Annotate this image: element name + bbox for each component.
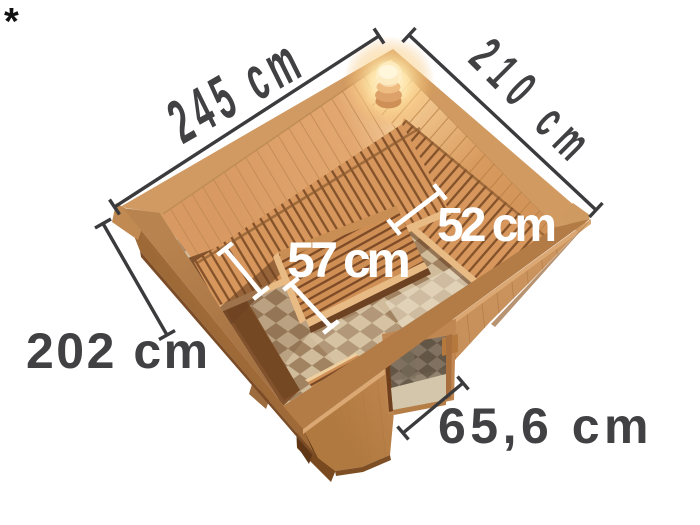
svg-text:52 cm: 52 cm: [437, 199, 554, 252]
svg-text:65,6 cm: 65,6 cm: [438, 398, 653, 454]
svg-text:57 cm: 57 cm: [287, 232, 408, 288]
svg-text:*: *: [4, 1, 19, 43]
svg-text:202 cm: 202 cm: [26, 323, 211, 379]
